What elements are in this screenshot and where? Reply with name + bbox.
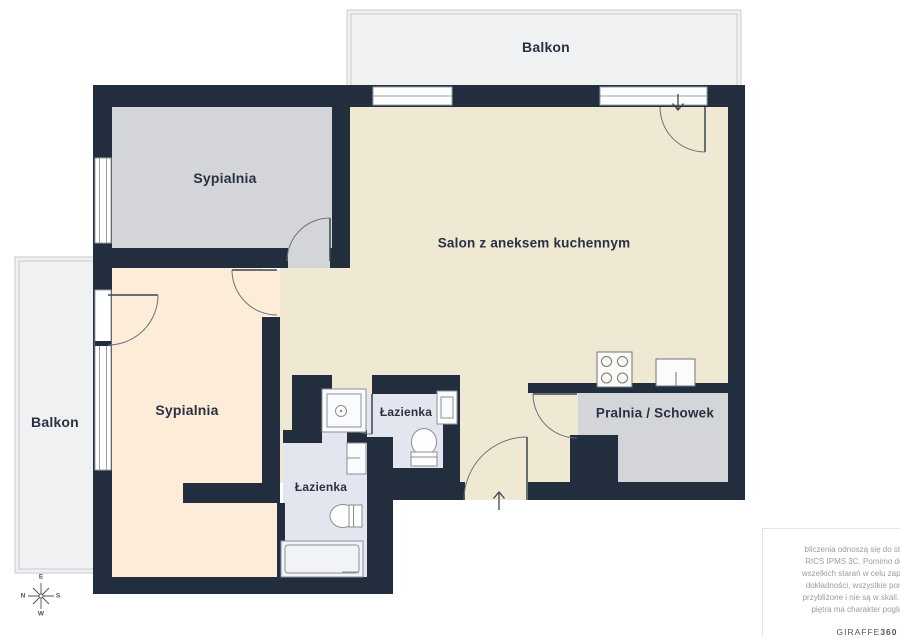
toilet-icon xyxy=(411,429,437,467)
bathtub-icon xyxy=(281,541,363,577)
disclaimer-line: piętra ma charakter poglądowy. xyxy=(771,604,900,616)
compass-south-label: S xyxy=(56,593,60,600)
laundry-label: Pralnia / Schowek xyxy=(596,406,714,421)
brand-name: GIRAFFE xyxy=(836,627,880,637)
shower-icon xyxy=(322,389,366,432)
stove-icon xyxy=(597,352,632,387)
disclaimer-line: bliczenia odnoszą się do standardu xyxy=(771,544,900,556)
floor-plan: Balkon Balkon Sypialnia Salon z aneksem … xyxy=(0,0,900,637)
bedroom-top-label: Sypialnia xyxy=(193,170,256,186)
bathroom-top-label: Łazienka xyxy=(380,405,432,419)
disclaimer-line: RICS IPMS 3C. Pomimo dołożenia xyxy=(771,556,900,568)
compass-east-label: E xyxy=(39,574,43,581)
disclaimer-line: wszelkich starań w celu zapewnienia xyxy=(771,568,900,580)
sink-icon xyxy=(347,443,366,474)
toilet-icon xyxy=(330,505,362,528)
disclaimer-box: bliczenia odnoszą się do standardu RICS … xyxy=(762,528,900,637)
disclaimer-line: przybliżone i nie są w skali. Ten plan xyxy=(771,592,900,604)
compass-icon xyxy=(28,583,54,609)
brand-suffix: 360 xyxy=(880,627,897,637)
balcony-top-label: Balkon xyxy=(522,39,570,55)
compass-west-label: W xyxy=(38,611,44,618)
kitchen-sink-icon xyxy=(656,359,695,386)
living-room-label: Salon z aneksem kuchennym xyxy=(438,236,631,251)
sink-icon xyxy=(437,391,457,424)
disclaimer-line: dokładności, wszystkie pomiary są xyxy=(771,580,900,592)
giraffe360-logo: GIRAFFE360 xyxy=(771,627,900,637)
bathroom-bottom-label: Łazienka xyxy=(295,480,347,494)
balcony-left-label: Balkon xyxy=(31,414,79,430)
compass-north-label: N xyxy=(21,593,26,600)
bedroom-left-label: Sypialnia xyxy=(155,402,218,418)
